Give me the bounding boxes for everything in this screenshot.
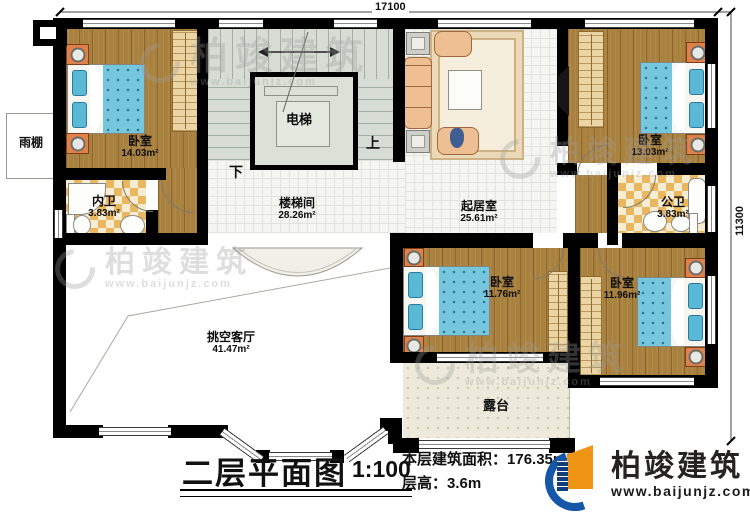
room-label-bedroom-bottom-right: 卧室 11.96m²	[604, 276, 641, 302]
wall-segment	[622, 233, 718, 248]
window	[334, 19, 377, 28]
dimension-height: 11300	[734, 203, 746, 239]
wall-segment	[607, 175, 618, 245]
rain-canopy-label: 雨棚	[19, 134, 43, 151]
room-name: 起居室	[461, 199, 497, 213]
room-name: 电梯	[286, 112, 312, 127]
window	[219, 19, 263, 28]
room-area: 28.26m²	[278, 210, 315, 222]
chimney-flue	[40, 27, 56, 39]
bed	[637, 277, 707, 347]
wall-segment	[53, 233, 208, 245]
wall-segment	[568, 245, 580, 385]
room-area: 11.76m²	[484, 289, 521, 301]
room-label-void-living: 挑空客厅 41.47m²	[207, 330, 255, 356]
stair-down-label: 下	[229, 162, 243, 182]
wall-bottom-left	[53, 425, 103, 438]
terrace-door-window	[437, 353, 543, 362]
bed-sheet	[90, 65, 103, 133]
room-name: 卧室	[638, 133, 662, 147]
room-area: 13.03m²	[631, 147, 668, 159]
room-area: 3.83m²	[657, 209, 689, 221]
bed	[403, 266, 490, 336]
pillow	[688, 315, 703, 341]
room-name: 公卫	[661, 195, 685, 209]
wall-segment	[557, 163, 577, 175]
wall-segment	[557, 29, 568, 146]
title-underline	[180, 489, 412, 497]
room-name: 卧室	[610, 276, 634, 290]
room-label-bedroom-bottom-mid: 卧室 11.76m²	[484, 275, 521, 301]
wardrobe	[578, 31, 604, 128]
floor-area-label: 本层建筑面积：	[402, 451, 507, 468]
room-name: 卧室	[128, 134, 152, 148]
window	[707, 276, 716, 344]
room-area: 11.96m²	[604, 290, 641, 302]
pillow	[689, 69, 704, 95]
room-label-bedroom-top-left: 卧室 14.03m²	[121, 134, 158, 160]
nightstand	[66, 44, 89, 65]
toilet-tank	[689, 213, 698, 234]
window	[54, 210, 63, 238]
window	[707, 64, 716, 128]
coffee-table	[448, 70, 482, 110]
wall-segment	[657, 163, 718, 175]
brand-logo-icon	[543, 443, 603, 505]
room-label-inner-bath: 内卫 3.83m²	[88, 194, 120, 220]
floor-height-value: 3.6m	[447, 475, 481, 492]
wall-segment	[66, 168, 166, 180]
bed-sheet	[426, 267, 439, 335]
pillow	[408, 272, 423, 298]
room-label-elevator: 电梯	[286, 112, 312, 128]
stair-up-label: 上	[366, 133, 380, 153]
room-area: 14.03m²	[121, 148, 158, 160]
pillows	[68, 65, 90, 133]
wall-segment	[607, 163, 621, 175]
window	[600, 377, 694, 386]
room-area: 3.83m²	[88, 208, 120, 220]
floor-height-label: 层高：	[402, 475, 447, 492]
bed	[640, 62, 708, 134]
wall-bottom-mid	[168, 425, 228, 438]
brand-block: 柏竣建筑 www.baijunjz.com	[543, 443, 750, 505]
bed-sheet	[672, 63, 685, 133]
room-name: 内卫	[92, 194, 116, 208]
wardrobe	[548, 271, 568, 353]
bed-blanket	[638, 278, 671, 346]
brand-url: www.baijunjz.com	[611, 483, 750, 499]
room-label-public-bath: 公卫 3.83m²	[657, 195, 689, 221]
pillow	[408, 304, 423, 330]
wall-segment	[197, 29, 208, 168]
room-name: 露台	[483, 398, 509, 413]
bed-blanket	[641, 63, 672, 133]
wall-segment	[390, 233, 533, 248]
bed-blanket	[439, 267, 489, 335]
room-label-terrace: 露台	[483, 398, 509, 414]
room-area: 41.47m²	[207, 344, 255, 356]
floor-plan: 雨棚	[0, 0, 750, 516]
pillow	[689, 102, 704, 128]
pillows	[684, 278, 706, 346]
pillows	[685, 63, 707, 133]
terrace-edge-line	[569, 385, 570, 440]
room-name: 楼梯间	[279, 196, 315, 210]
window	[438, 19, 531, 28]
wardrobe	[172, 30, 198, 132]
nightstand	[66, 133, 89, 154]
dimension-width: 17100	[372, 1, 409, 13]
side-table	[406, 32, 430, 55]
wall-segment	[197, 168, 208, 245]
sofa	[404, 57, 432, 129]
room-label-stairwell: 楼梯间 28.26m²	[278, 196, 315, 222]
bed-blanket	[103, 65, 144, 133]
wall-segment	[393, 29, 405, 162]
wardrobe	[580, 276, 602, 376]
pillow	[688, 283, 703, 309]
brand-name: 柏竣建筑	[611, 450, 750, 483]
rain-canopy: 雨棚	[6, 113, 56, 179]
room-name: 卧室	[490, 275, 514, 289]
plan-title: 二层平面图	[182, 448, 347, 493]
room-label-living: 起居室 25.61m²	[460, 199, 497, 225]
person-figure	[450, 128, 464, 148]
room-label-bedroom-top-right: 卧室 13.03m²	[631, 133, 668, 159]
bed	[67, 64, 145, 134]
window	[83, 19, 175, 28]
window	[707, 186, 716, 232]
nightstand	[404, 248, 424, 267]
elevator-door	[264, 86, 338, 96]
room-name: 挑空客厅	[207, 330, 255, 344]
nightstand	[685, 347, 707, 367]
floor-entry-nook-right	[575, 175, 607, 233]
pillows	[404, 267, 426, 335]
stair-treads-left	[208, 79, 254, 160]
window	[99, 427, 171, 436]
window	[585, 19, 694, 28]
logo-panel	[557, 461, 568, 491]
nightstand	[685, 258, 707, 278]
side-table	[406, 130, 430, 153]
pillow	[72, 70, 87, 96]
bed-sheet	[671, 278, 684, 346]
armchair	[434, 31, 472, 57]
room-area: 25.61m²	[460, 213, 497, 225]
wall-segment	[390, 245, 403, 363]
pillow	[72, 102, 87, 128]
